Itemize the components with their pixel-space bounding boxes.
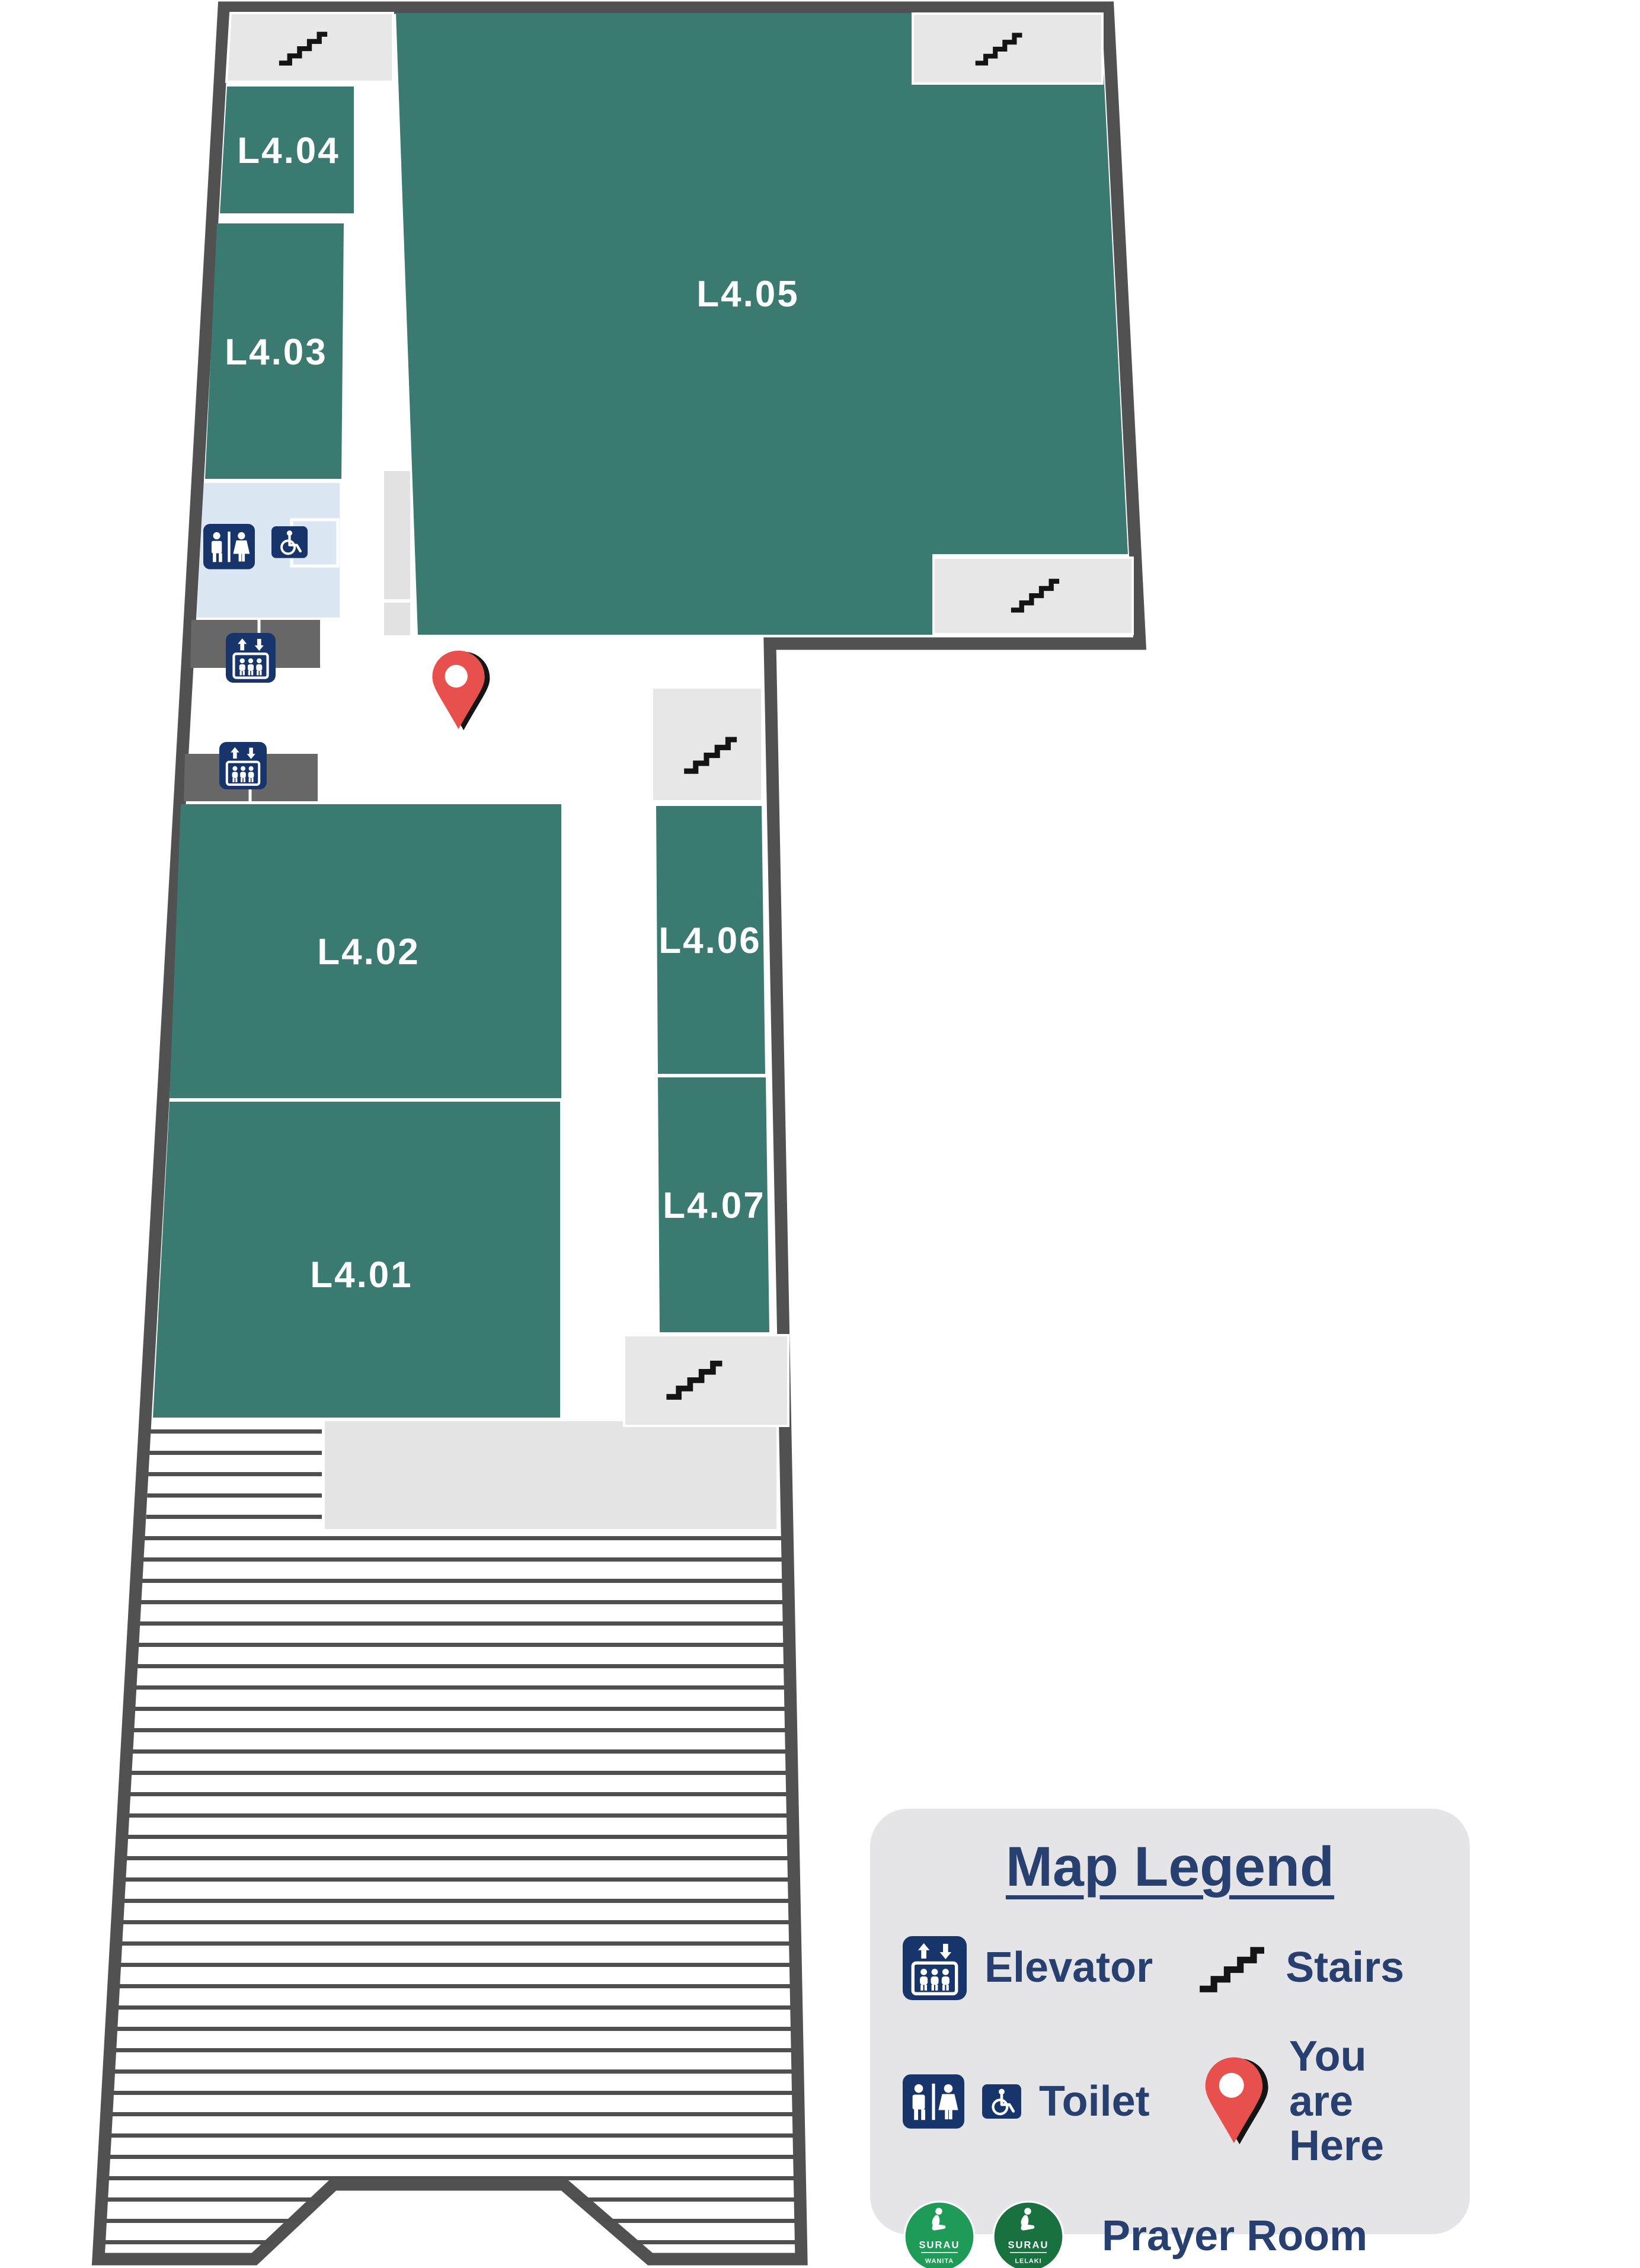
toilet-icon — [203, 524, 255, 570]
elevator-icon — [903, 1936, 967, 2000]
room-l406-label: L4.06 — [658, 920, 762, 961]
floor-map-page: L4.04 L4.03 L4.05 L4.02 L4.01 L4.06 L4.0… — [0, 0, 1640, 2268]
room-l403-label: L4.03 — [225, 332, 328, 373]
elevator-icon — [226, 633, 276, 683]
legend-stairs-label: Stairs — [1286, 1946, 1404, 1991]
wheelchair-icon — [982, 2084, 1021, 2119]
corridor-strip-lower — [384, 603, 410, 635]
room-l402-label: L4.02 — [317, 932, 420, 973]
legend-prayer-room-label: Prayer Room — [1102, 2214, 1367, 2259]
legend-item-prayer-room: SURAU WANITA SURAU LELAKI Prayer Room — [903, 2200, 1437, 2268]
toilet-icon — [903, 2074, 964, 2129]
stair-room-top-right — [913, 14, 1102, 84]
room-l407-label: L4.07 — [663, 1185, 766, 1226]
legend-title: Map Legend — [903, 1835, 1437, 1899]
room-l404-label: L4.04 — [237, 130, 340, 171]
map-legend-panel: Map Legend Elevator Stairs — [870, 1809, 1470, 2234]
room-l405 — [396, 13, 1128, 635]
room-l405-label: L4.05 — [696, 274, 800, 315]
surau-lelaki-title: SURAU — [1008, 2239, 1048, 2250]
stair-room-center — [652, 687, 762, 801]
surau-lelaki-subtitle: LELAKI — [1015, 2257, 1041, 2264]
legend-item-elevator: Elevator — [903, 1936, 1197, 2000]
stairs-icon — [1197, 1940, 1268, 1997]
terrace-hatch-left — [145, 1421, 322, 1537]
legend-item-stairs: Stairs — [1197, 1940, 1437, 1997]
surau-wanita-subtitle: WANITA — [925, 2257, 954, 2264]
terrace-hatch-main — [104, 1536, 795, 2252]
wheelchair-icon — [271, 526, 308, 558]
surau-wanita-title: SURAU — [919, 2239, 960, 2250]
you-are-here-pin — [432, 651, 490, 730]
you-are-here-pin-icon — [1197, 2054, 1271, 2149]
legend-item-toilet: Toilet — [903, 2074, 1197, 2129]
terrace-platform — [324, 1420, 778, 1530]
elevator-icon — [219, 742, 267, 789]
legend-grid: Elevator Stairs Toilet — [903, 1936, 1437, 2268]
surau-lelaki-icon: SURAU LELAKI — [992, 2200, 1065, 2268]
legend-you-are-here-label: You are Here — [1289, 2035, 1437, 2169]
corridor-strip-upper — [384, 471, 410, 599]
stair-room-bottom — [624, 1335, 788, 1426]
surau-wanita-icon: SURAU WANITA — [903, 2200, 976, 2268]
legend-item-you-are-here: You are Here — [1197, 2035, 1437, 2169]
legend-toilet-label: Toilet — [1039, 2080, 1150, 2125]
legend-elevator-label: Elevator — [984, 1946, 1153, 1991]
room-l401-label: L4.01 — [310, 1255, 413, 1295]
